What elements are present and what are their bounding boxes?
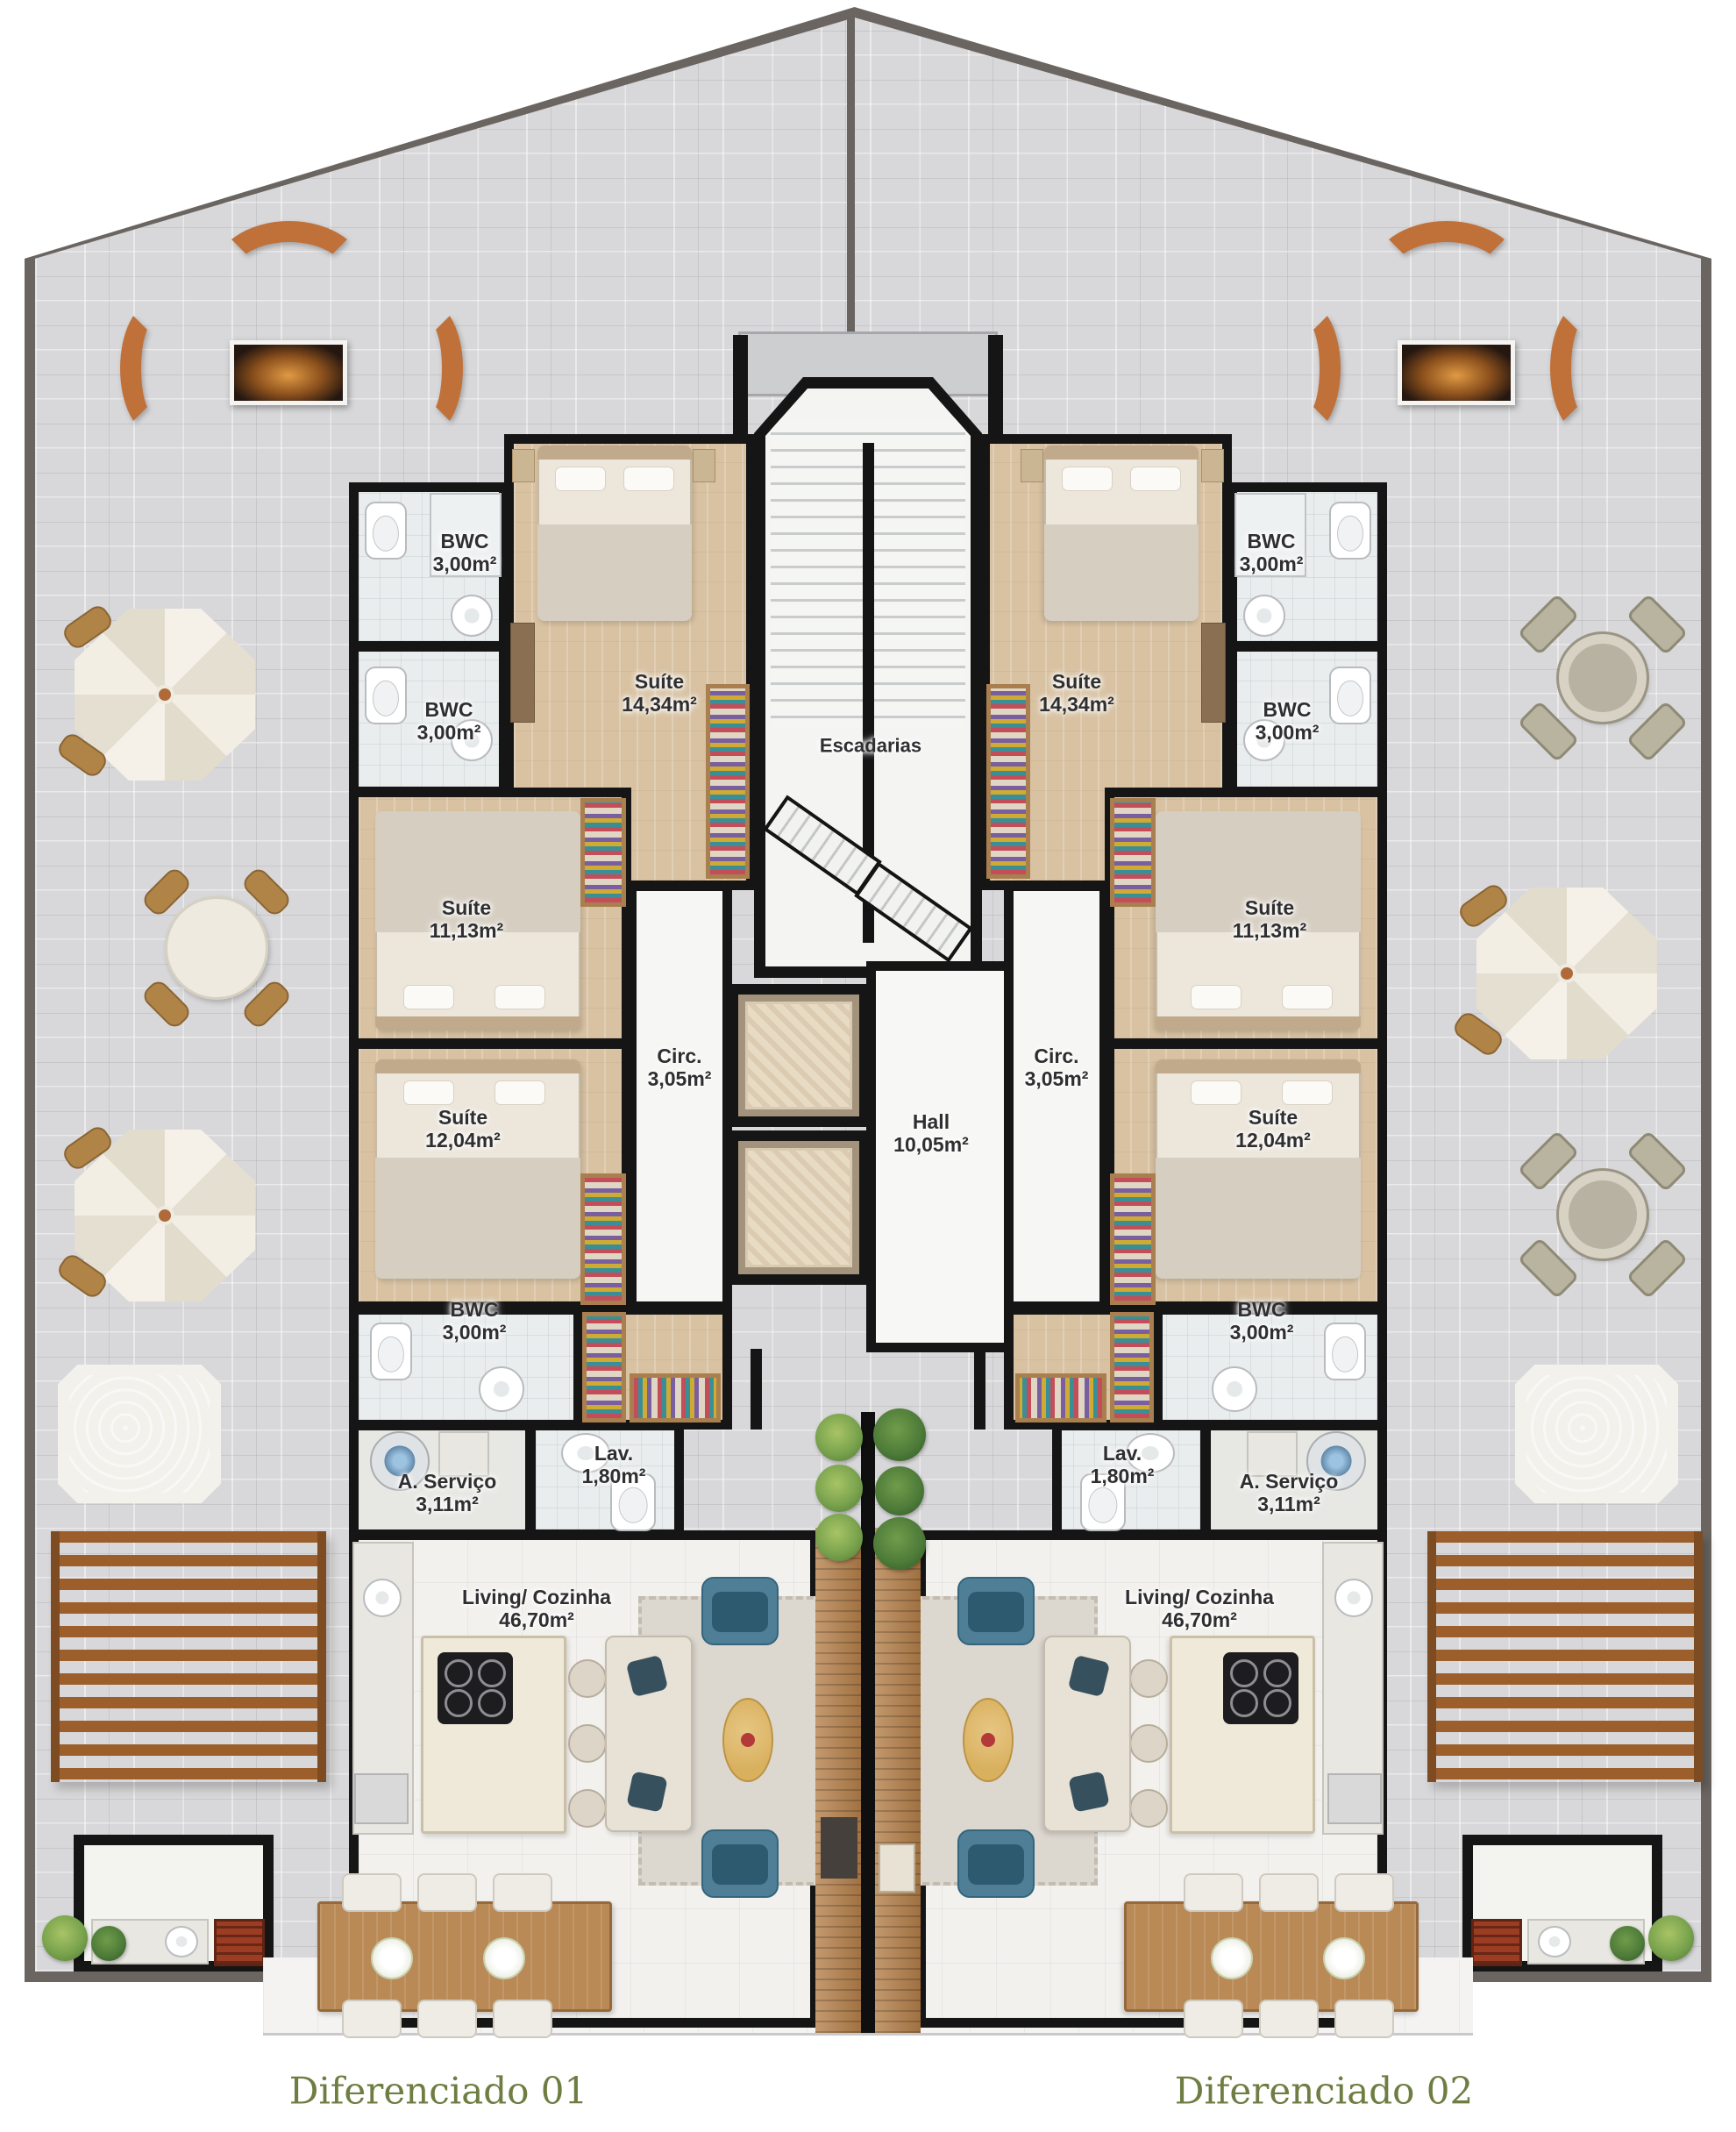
coffee-table bbox=[963, 1698, 1014, 1782]
dining-chair bbox=[417, 1873, 477, 1912]
room-area: 14,34m² bbox=[1039, 693, 1114, 716]
room-circulation bbox=[627, 881, 732, 1311]
room-label: BWC 3,00m² bbox=[1256, 698, 1320, 744]
room-circulation bbox=[1004, 881, 1109, 1311]
burner bbox=[445, 1659, 473, 1687]
room-name: A. Serviço bbox=[1240, 1470, 1339, 1493]
room-label: Suíte 12,04m² bbox=[425, 1106, 501, 1152]
plant bbox=[873, 1517, 926, 1570]
pillow bbox=[623, 467, 674, 491]
room-label: BWC 3,00m² bbox=[1240, 530, 1304, 575]
headboard bbox=[375, 1016, 580, 1030]
room-name: Suíte bbox=[1235, 1106, 1311, 1129]
curved-bench bbox=[1550, 303, 1617, 434]
armchair bbox=[701, 1577, 779, 1645]
bar-stool bbox=[1129, 1659, 1168, 1698]
room-label: Circ. 3,05m² bbox=[648, 1045, 712, 1090]
headboard bbox=[1044, 446, 1199, 460]
coffee-table bbox=[722, 1698, 773, 1782]
plant bbox=[815, 1514, 863, 1561]
headboard bbox=[375, 1059, 580, 1073]
toilet bbox=[365, 667, 407, 724]
room-label: BWC 3,00m² bbox=[433, 530, 497, 575]
grill bbox=[1471, 1919, 1522, 1966]
fireplace bbox=[1398, 340, 1515, 405]
room-area: 3,11m² bbox=[398, 1493, 497, 1515]
headboard bbox=[537, 446, 692, 460]
deck-sideboard bbox=[879, 1843, 915, 1893]
room-area: 3,00m² bbox=[443, 1321, 507, 1344]
room-label: BWC 3,00m² bbox=[443, 1298, 507, 1344]
pillow bbox=[1062, 467, 1113, 491]
plant bbox=[42, 1915, 88, 1961]
room-name: Suíte bbox=[1039, 670, 1114, 693]
toilet bbox=[1329, 667, 1371, 724]
pillow bbox=[1282, 1080, 1333, 1105]
pillow bbox=[1191, 985, 1242, 1009]
room-label: BWC 3,00m² bbox=[1230, 1298, 1294, 1344]
dining-chair bbox=[1184, 2000, 1243, 2038]
flower-centerpiece bbox=[1211, 1937, 1253, 1979]
armchair bbox=[957, 1577, 1035, 1645]
floor-plan: Escadarias Hall 10,05m² bbox=[0, 0, 1736, 2132]
pillow bbox=[1130, 467, 1181, 491]
x-table-set bbox=[1533, 1144, 1673, 1286]
unit-right: Suíte 14,34m² BWC 3,00m² BWC 3,00m² Suít… bbox=[916, 333, 1387, 2039]
wardrobe bbox=[580, 1173, 626, 1305]
room-name: Suíte bbox=[622, 670, 697, 693]
room-name: BWC bbox=[1240, 530, 1304, 553]
plant bbox=[1648, 1915, 1694, 1961]
kitchen-island bbox=[1170, 1636, 1315, 1834]
armchair bbox=[957, 1829, 1035, 1898]
dining-table bbox=[1124, 1901, 1419, 2012]
unit-caption-left: Diferenciado 01 bbox=[289, 2070, 587, 2113]
sofa-pillow bbox=[626, 1771, 667, 1812]
pergola bbox=[1427, 1531, 1703, 1782]
pillow bbox=[494, 985, 545, 1009]
nightstand bbox=[693, 449, 715, 482]
parasol-table bbox=[1476, 888, 1657, 1059]
dining-chair bbox=[493, 2000, 552, 2038]
room-area: 46,70m² bbox=[1125, 1608, 1274, 1631]
x-table-set bbox=[1533, 607, 1673, 749]
bed bbox=[1156, 1059, 1361, 1279]
room-label: Living/ Cozinha 46,70m² bbox=[1125, 1586, 1274, 1631]
room-label: Suíte 11,13m² bbox=[430, 896, 503, 942]
room-label: Suíte 12,04m² bbox=[1235, 1106, 1311, 1152]
bbq-deck bbox=[873, 1528, 921, 2033]
grill bbox=[214, 1919, 265, 1966]
grill-cabinet bbox=[821, 1817, 857, 1879]
desk bbox=[510, 623, 535, 723]
room-name: Suíte bbox=[430, 896, 503, 919]
blanket bbox=[537, 524, 692, 621]
blanket bbox=[375, 1158, 580, 1279]
burner bbox=[1230, 1689, 1258, 1717]
bar-stool bbox=[568, 1724, 607, 1763]
dining-chair bbox=[1259, 2000, 1319, 2038]
closet-rack bbox=[630, 1373, 721, 1423]
toilet bbox=[1324, 1323, 1366, 1380]
room-area: 3,11m² bbox=[1240, 1493, 1339, 1515]
bed bbox=[537, 446, 692, 621]
burner bbox=[445, 1689, 473, 1717]
room-area: 11,13m² bbox=[1233, 919, 1306, 942]
party-wall bbox=[861, 1412, 875, 2033]
room-label: Living/ Cozinha 46,70m² bbox=[462, 1586, 611, 1631]
room-area: 3,00m² bbox=[417, 721, 481, 744]
unit-left: Suíte 14,34m² BWC 3,00m² BWC 3,00m² Suít… bbox=[349, 333, 820, 2039]
room-name: BWC bbox=[433, 530, 497, 553]
sink bbox=[1538, 1926, 1571, 1957]
curved-bench bbox=[120, 303, 187, 434]
headboard bbox=[1156, 1016, 1361, 1030]
wardrobe bbox=[706, 684, 750, 879]
sink bbox=[451, 595, 493, 637]
room-area: 46,70m² bbox=[462, 1608, 611, 1631]
plant bbox=[1610, 1926, 1645, 1961]
bed bbox=[375, 1059, 580, 1279]
room-area: 1,80m² bbox=[582, 1465, 646, 1487]
plant bbox=[815, 1414, 863, 1461]
sofa-pillow bbox=[626, 1655, 668, 1697]
pillow bbox=[494, 1080, 545, 1105]
sofa-pillow bbox=[1068, 1655, 1110, 1697]
pillow bbox=[403, 1080, 454, 1105]
room-label: Lav. 1,80m² bbox=[1091, 1442, 1155, 1487]
desk bbox=[1201, 623, 1226, 723]
dining-chair bbox=[342, 1873, 402, 1912]
table-top bbox=[165, 896, 268, 1000]
room-area: 3,05m² bbox=[648, 1067, 712, 1090]
sink bbox=[1212, 1366, 1257, 1412]
bar-stool bbox=[1129, 1789, 1168, 1828]
hot-tub-water bbox=[69, 1375, 210, 1493]
bar-stool bbox=[568, 1789, 607, 1828]
room-name: BWC bbox=[443, 1298, 507, 1321]
room-area: 3,00m² bbox=[1230, 1321, 1294, 1344]
flower-centerpiece bbox=[371, 1937, 413, 1979]
sofa bbox=[1043, 1636, 1131, 1832]
room-area: 11,13m² bbox=[430, 919, 503, 942]
fridge bbox=[1327, 1773, 1382, 1824]
room-area: 3,00m² bbox=[1256, 721, 1320, 744]
burner bbox=[478, 1659, 506, 1687]
sink bbox=[1243, 595, 1285, 637]
wardrobe bbox=[986, 684, 1030, 879]
room-label: BWC 3,00m² bbox=[417, 698, 481, 744]
room-name: Circ. bbox=[1025, 1045, 1089, 1067]
room-area: 12,04m² bbox=[1235, 1129, 1311, 1152]
plant bbox=[91, 1926, 126, 1961]
dining-chair bbox=[1259, 1873, 1319, 1912]
hot-tub bbox=[58, 1365, 221, 1503]
room-name: Living/ Cozinha bbox=[1125, 1586, 1274, 1608]
sink bbox=[479, 1366, 524, 1412]
room-name: Suíte bbox=[1233, 896, 1306, 919]
flower-centerpiece bbox=[483, 1937, 525, 1979]
bbq-deck bbox=[815, 1528, 863, 2033]
room-name: BWC bbox=[1256, 698, 1320, 721]
room-label: Lav. 1,80m² bbox=[582, 1442, 646, 1487]
room-area: 3,00m² bbox=[1240, 553, 1304, 575]
table-top bbox=[1559, 634, 1647, 722]
nightstand bbox=[1201, 449, 1224, 482]
room-name: Hall bbox=[893, 1110, 969, 1133]
pillow bbox=[1191, 1080, 1242, 1105]
dining-chair bbox=[417, 2000, 477, 2038]
blanket bbox=[1044, 524, 1199, 621]
kitchen-sink bbox=[1334, 1579, 1373, 1617]
pillow bbox=[403, 985, 454, 1009]
pillow bbox=[555, 467, 606, 491]
room-name: Living/ Cozinha bbox=[462, 1586, 611, 1608]
plant bbox=[815, 1465, 863, 1512]
room-area: 12,04m² bbox=[425, 1129, 501, 1152]
stove bbox=[1223, 1652, 1298, 1724]
kitchen-sink bbox=[363, 1579, 402, 1617]
blanket bbox=[1156, 1158, 1361, 1279]
room-label: A. Serviço 3,11m² bbox=[398, 1470, 497, 1515]
room-name: BWC bbox=[1230, 1298, 1294, 1321]
fireplace bbox=[230, 340, 347, 405]
pergola bbox=[51, 1531, 326, 1782]
dining-chair bbox=[1334, 1873, 1394, 1912]
dining-chair bbox=[493, 1873, 552, 1912]
plant bbox=[875, 1466, 924, 1515]
toilet bbox=[370, 1323, 412, 1380]
sink bbox=[165, 1926, 198, 1957]
dining-chair bbox=[1334, 2000, 1394, 2038]
table-top bbox=[1559, 1171, 1647, 1259]
room-area: 1,80m² bbox=[1091, 1465, 1155, 1487]
burner bbox=[1263, 1659, 1291, 1687]
room-label: Suíte 14,34m² bbox=[622, 670, 697, 716]
wardrobe bbox=[1110, 1173, 1156, 1305]
sofa-pillow bbox=[1068, 1771, 1109, 1812]
dining-chair bbox=[342, 2000, 402, 2038]
room-name: Escadarias bbox=[820, 734, 921, 756]
nightstand bbox=[512, 449, 535, 482]
dining-chair bbox=[1184, 1873, 1243, 1912]
burner bbox=[478, 1689, 506, 1717]
room-name: BWC bbox=[417, 698, 481, 721]
plant bbox=[873, 1408, 926, 1461]
headboard bbox=[1156, 1059, 1361, 1073]
room-label: A. Serviço 3,11m² bbox=[1240, 1470, 1339, 1515]
bar-stool bbox=[568, 1659, 607, 1698]
closet-rack bbox=[582, 1312, 626, 1423]
room-area: 14,34m² bbox=[622, 693, 697, 716]
hot-tub bbox=[1515, 1365, 1678, 1503]
nightstand bbox=[1021, 449, 1043, 482]
fridge bbox=[354, 1773, 409, 1824]
closet-rack bbox=[1110, 1312, 1154, 1423]
burner bbox=[1263, 1689, 1291, 1717]
flower-centerpiece bbox=[1323, 1937, 1365, 1979]
hall-label: Hall 10,05m² bbox=[893, 1110, 969, 1156]
room-area: 10,05m² bbox=[893, 1133, 969, 1156]
wardrobe bbox=[1110, 798, 1156, 907]
room-name: Lav. bbox=[1091, 1442, 1155, 1465]
stove bbox=[438, 1652, 513, 1724]
toilet bbox=[1329, 502, 1371, 560]
room-name: Lav. bbox=[582, 1442, 646, 1465]
wardrobe bbox=[580, 798, 626, 907]
stairs-label: Escadarias bbox=[820, 734, 921, 756]
armchair bbox=[701, 1829, 779, 1898]
closet-rack bbox=[1015, 1373, 1106, 1423]
curved-bench bbox=[213, 221, 366, 326]
round-table bbox=[149, 882, 284, 1014]
unit-caption-right: Diferenciado 02 bbox=[1175, 2070, 1473, 2113]
bar-stool bbox=[1129, 1724, 1168, 1763]
sofa bbox=[605, 1636, 693, 1832]
room-area: 3,00m² bbox=[433, 553, 497, 575]
bed bbox=[1044, 446, 1199, 621]
room-label: Circ. 3,05m² bbox=[1025, 1045, 1089, 1090]
room-name: Suíte bbox=[425, 1106, 501, 1129]
dining-table bbox=[317, 1901, 612, 2012]
pillow bbox=[1282, 985, 1333, 1009]
room-name: A. Serviço bbox=[398, 1470, 497, 1493]
kitchen-island bbox=[421, 1636, 566, 1834]
room-label: Suíte 11,13m² bbox=[1233, 896, 1306, 942]
room-area: 3,05m² bbox=[1025, 1067, 1089, 1090]
room-name: Circ. bbox=[648, 1045, 712, 1067]
curved-bench bbox=[1370, 221, 1523, 326]
burner bbox=[1230, 1659, 1258, 1687]
hot-tub-water bbox=[1526, 1375, 1667, 1493]
room-label: Suíte 14,34m² bbox=[1039, 670, 1114, 716]
toilet bbox=[365, 502, 407, 560]
